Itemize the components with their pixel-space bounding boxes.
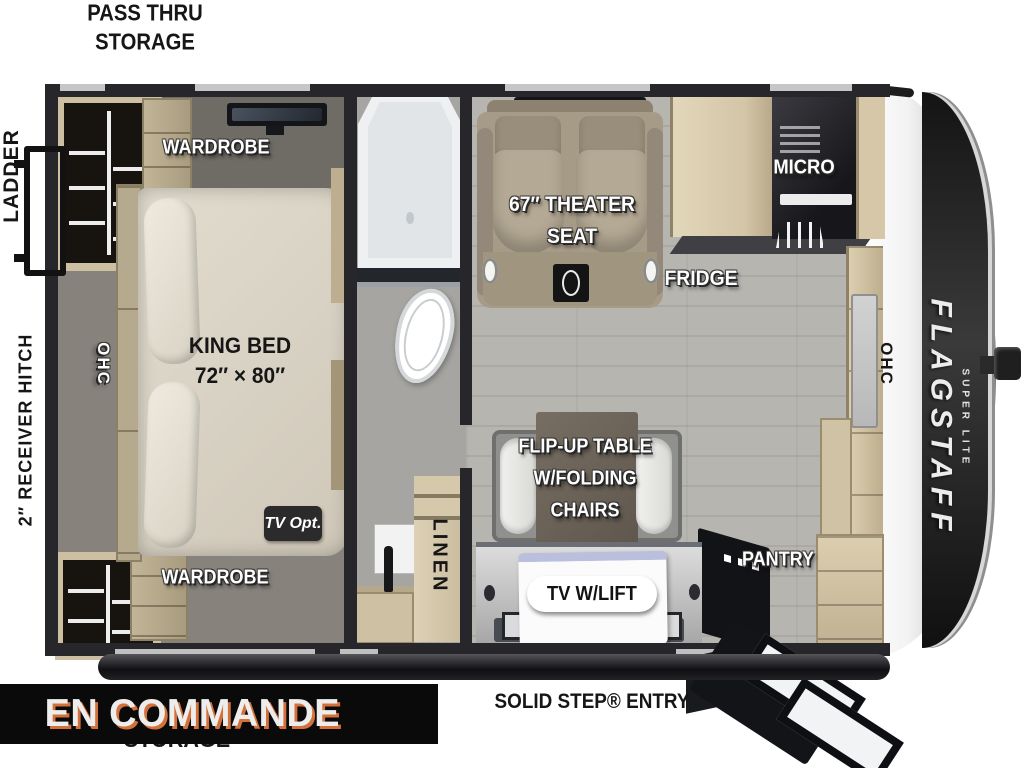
flip-up-table-label: CHAIRS (550, 500, 619, 523)
window-segment (505, 84, 650, 91)
window-segment (770, 84, 852, 91)
window-segment (195, 84, 310, 91)
brand-model-label: FLAGSTAFF (924, 298, 958, 537)
faucet-icon (384, 546, 393, 592)
status-banner-label: EN COMMANDE (0, 692, 340, 736)
flip-up-table-label: W/FOLDING (534, 468, 637, 491)
window-segment (60, 84, 105, 91)
pass-thru-storage-label: STORAGE (95, 29, 195, 56)
micro-label: MICRO (773, 157, 834, 180)
tv-lift-label: TV W/LIFT (547, 583, 637, 606)
tv-lift-badge: TV W/LIFT (527, 576, 657, 612)
wardrobe-label: WARDROBE (162, 137, 269, 160)
upper-cabinet (856, 97, 885, 239)
pantry-label: PANTRY (742, 549, 814, 572)
linen-label: LINEN (428, 519, 451, 594)
status-banner: EN COMMANDE (0, 684, 438, 744)
king-bed-label: KING BED (189, 333, 291, 359)
microwave-shelf (780, 194, 852, 205)
brand-logo: SUPER LITE FLAGSTAFF (924, 298, 971, 537)
stove-controls-icon (780, 126, 820, 154)
burner-grate-icon (776, 222, 824, 248)
bathroom-wall-right-upper (460, 95, 472, 425)
bath-mirror (374, 524, 416, 574)
tv-opt-badge: TV Opt. (264, 506, 322, 541)
seat-control-icon (553, 264, 589, 302)
hitch-jack-icon (994, 347, 1021, 380)
ohc-label-right: OHC (876, 342, 896, 386)
ladder-label: LADDER (0, 129, 24, 223)
flip-up-table-label: FLIP-UP TABLE (518, 436, 651, 459)
theater-seat-label: SEAT (547, 225, 597, 249)
fridge-label: FRIDGE (665, 267, 738, 291)
cupholder-icon (643, 258, 659, 284)
vent-handle (266, 126, 284, 135)
shower-threshold (352, 268, 468, 282)
pantry-cabinet-upper (820, 418, 852, 538)
pillow (143, 381, 201, 549)
receiver-hitch-label: 2″ RECEIVER HITCH (16, 334, 37, 527)
tv-opt-label: TV Opt. (265, 515, 322, 533)
cupholder-icon (482, 258, 498, 284)
sink-icon (851, 294, 878, 428)
linen-drawers (414, 476, 460, 520)
bath-vanity (352, 586, 414, 644)
king-bed-size-label: 72″ × 80″ (195, 363, 285, 389)
ladder-icon (24, 146, 66, 276)
theater-seat-label: 67″ THEATER (509, 193, 635, 217)
cabinet-knob-icon (689, 584, 700, 600)
pass-thru-storage-label: PASS THRU (87, 0, 202, 27)
bathroom-wall-right-lower (460, 468, 472, 644)
pantry-cabinet-lower (816, 534, 884, 646)
shower-pan (358, 92, 462, 270)
ohc-label-left: OHC (93, 342, 113, 386)
cabinet-knob-icon (484, 585, 495, 601)
rv-floorplan: SUPER LITE FLAGSTAFF (0, 0, 1024, 768)
brand-trim-label: SUPER LITE (960, 298, 971, 537)
wardrobe-label: WARDROBE (161, 567, 268, 590)
fridge-cabinet (670, 97, 775, 237)
roof-vent-icon (227, 103, 327, 126)
bathroom-wall-left (344, 95, 357, 644)
solid-step-entry-label: SOLID STEP® ENTRY (495, 690, 690, 714)
shower-threshold-lip (356, 282, 464, 287)
awning-tube (98, 654, 890, 680)
